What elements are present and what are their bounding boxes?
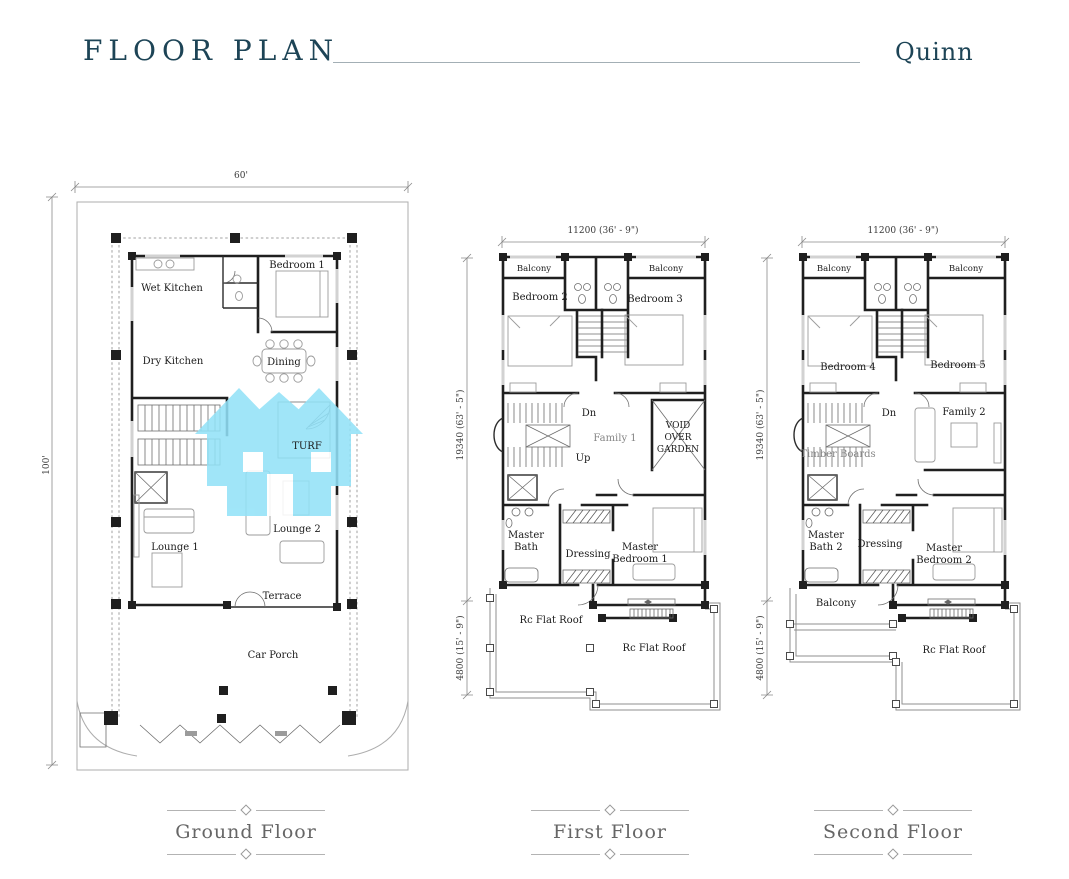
diamond-icon (887, 848, 898, 859)
room-label-master-bedroom-2: Bedroom 2 (916, 555, 972, 566)
dim-width-label: 60' (234, 171, 248, 181)
caption-divider-bottom (167, 850, 325, 858)
diamond-icon (887, 804, 898, 815)
room-label-master-bath-2: Bath (514, 542, 538, 553)
divider-line (903, 854, 972, 855)
divider-line (814, 854, 883, 855)
dim-height-lower-label: 4800 (15' - 9") (755, 615, 766, 680)
elevator-shaft (135, 472, 167, 503)
room-label-balcony-right: Balcony (949, 264, 983, 274)
caption-divider-top (167, 806, 325, 814)
brand-watermark: TURF (193, 368, 365, 516)
room-label-rc-flat-roof-right: Rc Flat Roof (623, 643, 687, 654)
room-label-terrace: Terrace (263, 591, 302, 602)
room-label-dining: Dining (267, 357, 301, 368)
dimension-left: 100' (42, 193, 58, 769)
dimension-top: 11200 (36' - 9") (798, 225, 1009, 248)
divider-line (531, 810, 600, 811)
divider-line (903, 810, 972, 811)
room-label-rc-flat-roof-left: Rc Flat Roof (520, 615, 584, 626)
caption-label: Second Floor (823, 821, 963, 843)
second-floor-plan: 11200 (36' - 9") 19340 (63' - 5") 4800 (… (750, 220, 1050, 740)
room-labels: Balcony Balcony Bedroom 2 Bedroom 3 Dn U… (508, 264, 699, 654)
divider-line (256, 810, 325, 811)
dimension-left: 19340 (63' - 5") 4800 (15' - 9") (455, 254, 473, 699)
room-label-balcony-left: Balcony (517, 264, 551, 274)
caption-first-floor: First Floor (520, 806, 700, 858)
room-label-void-1: VOID (665, 421, 691, 431)
caption-divider-bottom (531, 850, 689, 858)
room-label-void-3: GARDEN (657, 445, 699, 455)
caption-divider-top (814, 806, 972, 814)
room-label-up: Up (576, 453, 591, 464)
room-label-master-bedroom-1: Master (622, 542, 658, 553)
room-label-master-bath-2: Bath 2 (809, 542, 842, 553)
entry-gates (140, 725, 340, 743)
room-label-bedroom-1: Bedroom 1 (269, 260, 325, 271)
page-title: FLOOR PLAN (83, 34, 339, 67)
dim-height-upper-label: 19340 (63' - 5") (455, 389, 466, 460)
diamond-icon (240, 848, 251, 859)
room-label-family-1: Family 1 (593, 433, 636, 444)
center-staircase (878, 310, 927, 357)
room-label-balcony-bottom: Balcony (816, 598, 857, 609)
room-label-dry-kitchen: Dry Kitchen (143, 356, 204, 367)
caption-label: First Floor (553, 821, 667, 843)
room-label-dressing: Dressing (857, 539, 903, 550)
room-label-master-bedroom-1: Master (926, 543, 962, 554)
room-label-master-bedroom-2: Bedroom 1 (612, 554, 668, 565)
room-label-void-2: OVER (664, 433, 691, 443)
divider-line (167, 854, 236, 855)
caption-label: Ground Floor (175, 821, 317, 843)
room-label-balcony-left: Balcony (817, 264, 851, 274)
dim-height-upper-label: 19340 (63' - 5") (755, 389, 766, 460)
room-label-bedroom-5: Bedroom 5 (930, 360, 986, 371)
divider-line (256, 854, 325, 855)
center-staircase (578, 310, 627, 357)
room-label-dn: Dn (882, 408, 897, 419)
divider-line (620, 854, 689, 855)
room-label-lounge-1: Lounge 1 (151, 542, 198, 553)
room-label-balcony-right: Balcony (649, 264, 683, 274)
room-label-bedroom-3: Bedroom 3 (627, 294, 683, 305)
room-label-dn: Dn (582, 408, 597, 419)
project-name: Quinn (895, 38, 974, 66)
dimension-left: 19340 (63' - 5") 4800 (15' - 9") (755, 254, 773, 699)
caption-divider-top (531, 806, 689, 814)
side-staircase (508, 403, 570, 467)
room-label-turf: TURF (292, 441, 322, 452)
dim-width-label: 11200 (36' - 9") (567, 225, 638, 236)
room-label-lounge-2: Lounge 2 (273, 524, 320, 535)
diamond-icon (604, 804, 615, 815)
room-label-timber-boards: Timber Boards (800, 449, 875, 460)
divider-line (620, 810, 689, 811)
caption-divider-bottom (814, 850, 972, 858)
divider-line (167, 810, 236, 811)
dim-width-label: 11200 (36' - 9") (867, 225, 938, 236)
dimension-top: 11200 (36' - 9") (498, 225, 709, 248)
dimension-top: 60' (71, 171, 412, 193)
room-label-family-2: Family 2 (942, 407, 985, 418)
elevator-shaft (508, 475, 537, 500)
room-label-car-porch: Car Porch (248, 650, 299, 661)
room-label-bedroom-4: Bedroom 4 (820, 362, 876, 373)
dim-height-lower-label: 4800 (15' - 9") (455, 615, 466, 680)
room-label-master-bath-1: Master (808, 530, 844, 541)
caption-ground-floor: Ground Floor (156, 806, 336, 858)
wardrobes (563, 510, 610, 583)
caption-second-floor: Second Floor (803, 806, 983, 858)
elevator-shaft (808, 475, 837, 500)
first-floor-plan: 11200 (36' - 9") 19340 (63' - 5") 4800 (… (450, 220, 750, 740)
divider-line (531, 854, 600, 855)
room-label-master-bath-1: Master (508, 530, 544, 541)
diamond-icon (604, 848, 615, 859)
header-divider-line (333, 62, 860, 63)
dim-height-label: 100' (42, 455, 52, 475)
room-label-dressing: Dressing (565, 549, 611, 560)
room-label-wet-kitchen: Wet Kitchen (141, 283, 203, 294)
floor-plan-page: FLOOR PLAN Quinn 60' 100' (0, 0, 1069, 879)
divider-line (814, 810, 883, 811)
diamond-icon (240, 804, 251, 815)
house-logo-icon (195, 388, 363, 516)
room-label-rc-flat-roof: Rc Flat Roof (923, 645, 987, 656)
room-label-bedroom-2: Bedroom 2 (512, 292, 568, 303)
